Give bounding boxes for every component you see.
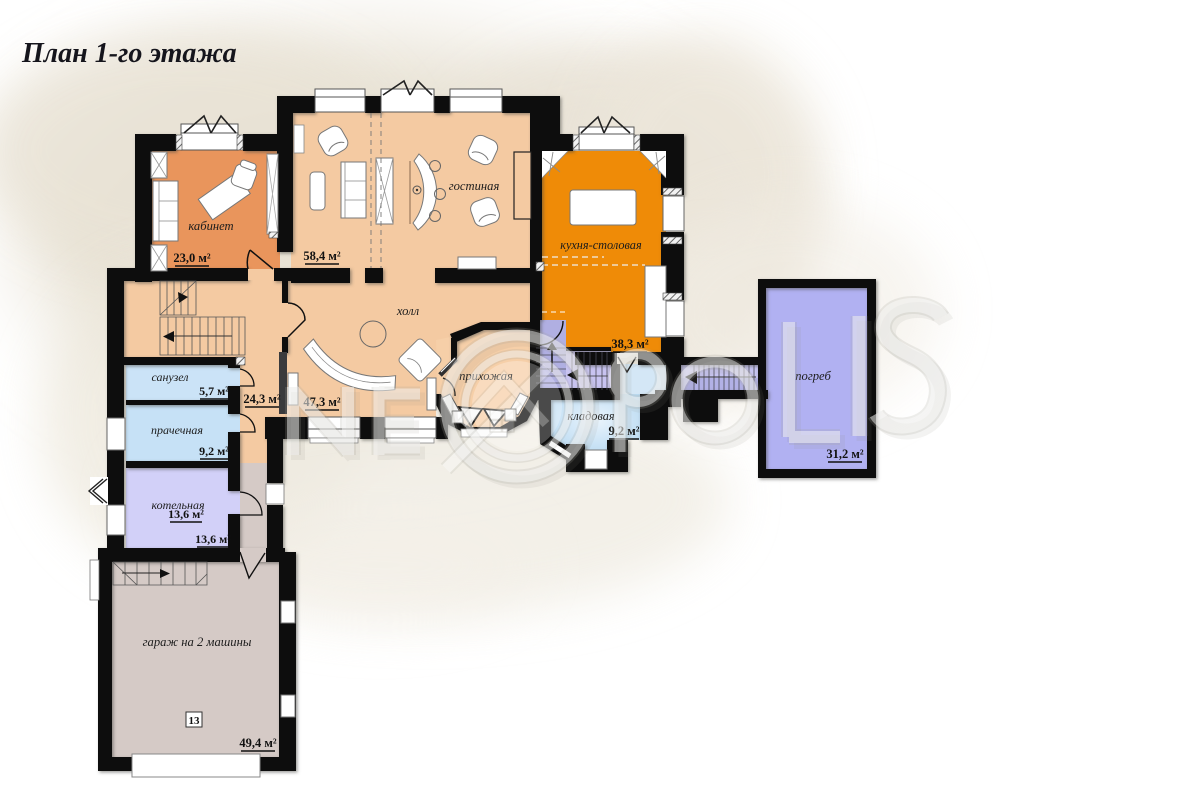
svg-text:9,2 м²: 9,2 м² [199,444,229,458]
svg-text:гараж на 2 машины: гараж на 2 машины [143,635,252,649]
svg-text:49,4 м²: 49,4 м² [239,736,277,750]
svg-text:кухня-столовая: кухня-столовая [560,238,642,252]
svg-text:План 1-го этажа: План 1-го этажа [21,38,237,69]
svg-text:24,3 м²: 24,3 м² [243,392,281,406]
svg-text:гостиная: гостиная [449,179,500,193]
svg-text:холл: холл [396,304,420,318]
svg-text:санузел: санузел [151,370,188,384]
svg-text:23,0 м²: 23,0 м² [173,251,211,265]
svg-text:31,2 м²: 31,2 м² [826,447,864,461]
svg-text:58,4 м²: 58,4 м² [303,249,341,263]
svg-text:кабинет: кабинет [188,219,233,233]
svg-text:13: 13 [189,715,201,727]
svg-text:13,6 м²: 13,6 м² [195,532,231,546]
svg-text:13,6 м²: 13,6 м² [168,507,204,521]
svg-text:прачечная: прачечная [151,423,203,437]
svg-text:5,7 м²: 5,7 м² [199,384,229,398]
